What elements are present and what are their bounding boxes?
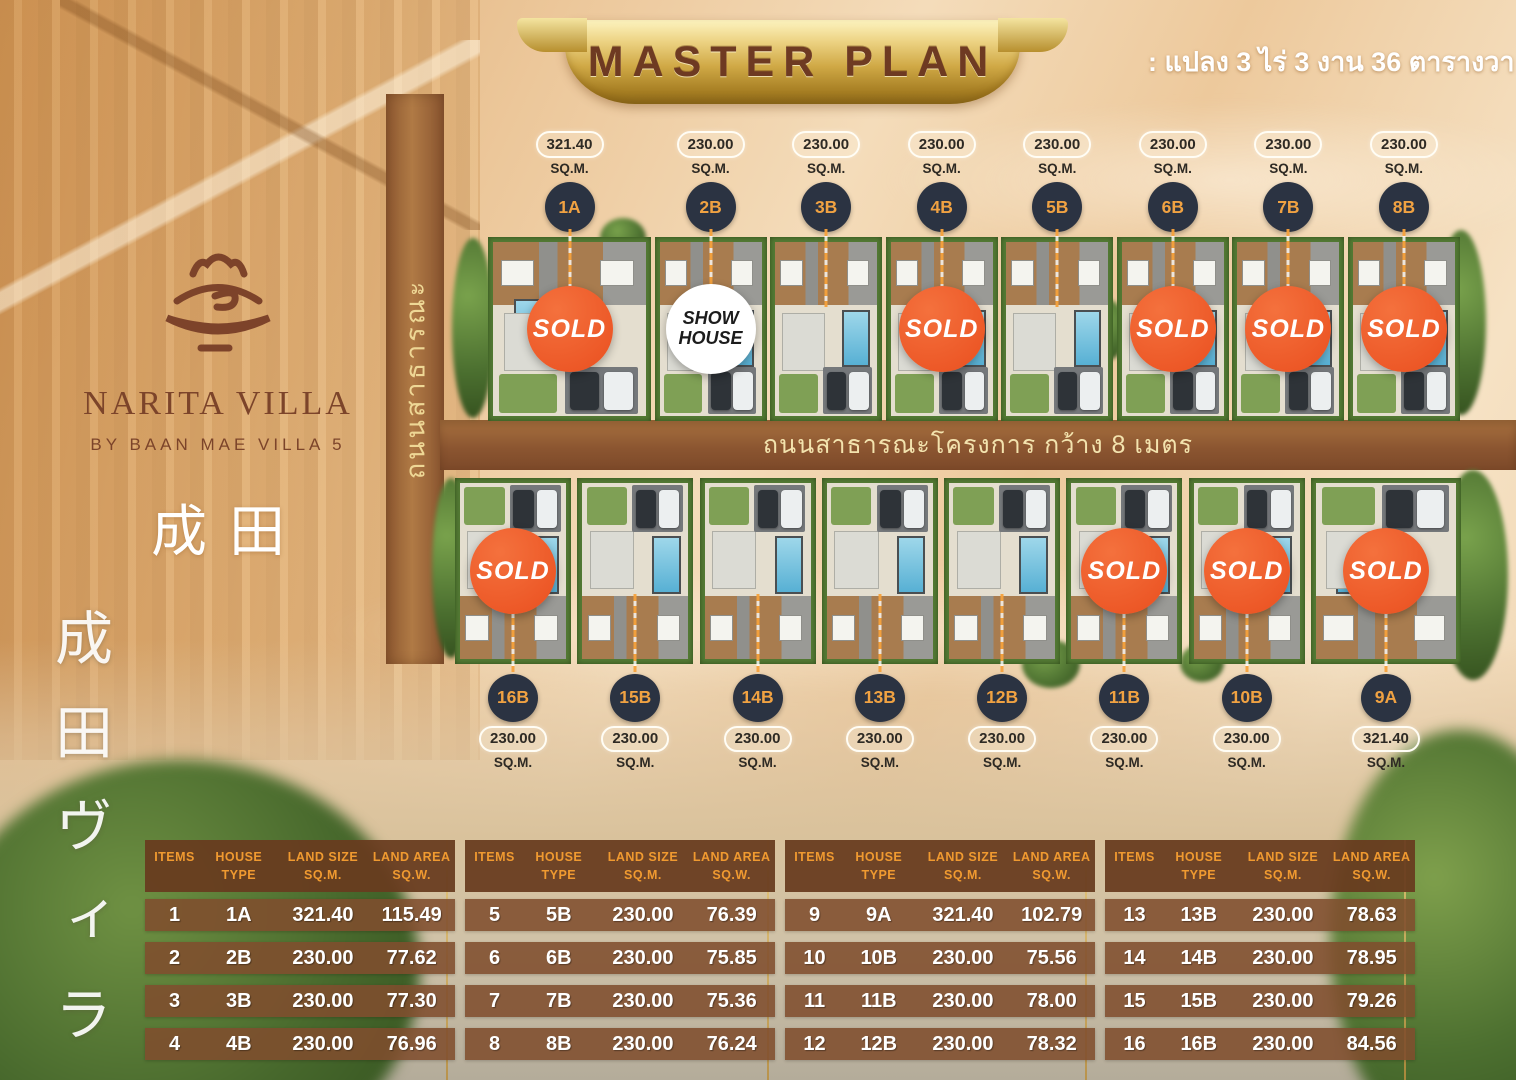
land-area-note: : แปลง 3 ไร่ 3 งาน 36 ตารางวา bbox=[1148, 40, 1515, 83]
plot-size-value: 230.00 bbox=[1101, 730, 1147, 747]
bed bbox=[1077, 615, 1100, 642]
plot-size-units: SQ.M. bbox=[983, 755, 1021, 770]
plot-connector-line bbox=[1056, 229, 1059, 307]
villa-floorplan bbox=[944, 478, 1060, 664]
swimming-pool bbox=[897, 536, 926, 594]
bed bbox=[588, 615, 611, 642]
pagoda-icon bbox=[143, 244, 293, 359]
carport bbox=[1401, 367, 1450, 414]
plot-row-bottom: 16B 230.00 SQ.M. bbox=[455, 468, 1461, 770]
bed bbox=[1309, 260, 1331, 286]
car bbox=[636, 490, 656, 528]
car bbox=[570, 372, 599, 410]
sold-badge: SOLD bbox=[1361, 286, 1447, 372]
plot-label-stack: 12B 230.00 SQ.M. bbox=[944, 666, 1060, 770]
table-cell: 230.00 bbox=[596, 904, 691, 927]
plot: 10B 230.00 SQ.M. bbox=[1189, 468, 1305, 770]
garden-lawn bbox=[1322, 487, 1375, 526]
table-row: 1313B230.0078.63 bbox=[1105, 899, 1415, 931]
table-cell: 12B bbox=[842, 1033, 915, 1056]
villa-floorplan: SOLD bbox=[488, 237, 651, 421]
plot: 230.00 SQ.M. 3B bbox=[770, 131, 882, 423]
table-header-cell: LAND SIZESQ.M. bbox=[276, 848, 371, 884]
plot-id-circle: 1A bbox=[545, 182, 595, 232]
car bbox=[733, 372, 753, 410]
table-row: 1111B230.0078.00 bbox=[785, 985, 1095, 1017]
swimming-pool bbox=[1019, 536, 1048, 594]
garden-lawn bbox=[1010, 374, 1049, 412]
bed bbox=[896, 260, 918, 286]
plot-size-pill: 230.00 bbox=[1090, 726, 1158, 752]
plot-size-units: SQ.M. bbox=[691, 161, 729, 176]
car bbox=[1080, 372, 1100, 410]
plot-size-units: SQ.M. bbox=[1385, 161, 1423, 176]
carport bbox=[1244, 485, 1295, 533]
garden-lawn bbox=[587, 487, 627, 526]
plot: 9A 321.40 SQ.M. bbox=[1311, 468, 1461, 770]
table-header-row: ITEMS HOUSETYPELAND SIZESQ.M.LAND AREASQ… bbox=[1105, 840, 1415, 892]
plot-id-circle: 16B bbox=[488, 674, 538, 722]
plot-label-stack: 15B 230.00 SQ.M. bbox=[577, 666, 693, 770]
table-header-cell: HOUSETYPE bbox=[1162, 848, 1235, 884]
plot-size-units: SQ.M. bbox=[1269, 161, 1307, 176]
plot-id-circle: 12B bbox=[977, 674, 1027, 722]
bed bbox=[1023, 615, 1046, 642]
bed bbox=[1414, 615, 1445, 642]
table-cell: 11 bbox=[787, 990, 842, 1013]
car bbox=[1271, 490, 1291, 528]
brand-subtitle: BY BAAN MAE VILLA 5 bbox=[68, 435, 368, 455]
garden-lawn bbox=[499, 374, 557, 412]
villa-floorplan bbox=[770, 237, 882, 421]
car bbox=[659, 490, 679, 528]
table-header-cell: ITEMS bbox=[787, 848, 842, 884]
sold-badge: SOLD bbox=[1245, 286, 1331, 372]
plot-id-circle: 10B bbox=[1222, 674, 1272, 722]
car bbox=[1058, 372, 1078, 410]
plot-size-units: SQ.M. bbox=[1038, 161, 1076, 176]
table-row: 44B230.0076.96 bbox=[145, 1028, 455, 1060]
garden-lawn bbox=[1357, 374, 1396, 412]
sold-badge: SOLD bbox=[527, 286, 613, 372]
bed bbox=[1193, 260, 1215, 286]
bed bbox=[1268, 615, 1291, 642]
brand-name: NARITA VILLA bbox=[68, 385, 368, 423]
plot-id-circle: 9A bbox=[1361, 674, 1411, 722]
table-cell: 230.00 bbox=[276, 990, 371, 1013]
garden-lawn bbox=[1076, 487, 1116, 526]
plot-id-circle: 15B bbox=[610, 674, 660, 722]
villa-floorplan bbox=[700, 478, 816, 664]
table-row: 1414B230.0078.95 bbox=[1105, 942, 1415, 974]
plot-label-stack: 230.00 SQ.M. 8B bbox=[1348, 131, 1460, 235]
table-cell: 230.00 bbox=[1236, 904, 1331, 927]
plot-connector-line bbox=[825, 229, 828, 307]
plot-size-pill: 230.00 bbox=[1213, 726, 1281, 752]
table-header-cell: LAND AREASQ.W. bbox=[690, 848, 773, 884]
bed bbox=[534, 615, 557, 642]
table-group: ITEMS HOUSETYPELAND SIZESQ.M.LAND AREASQ… bbox=[465, 840, 775, 1060]
car bbox=[1196, 372, 1216, 410]
table-cell: 230.00 bbox=[1236, 990, 1331, 1013]
bed bbox=[657, 615, 680, 642]
table-cell: 14B bbox=[1162, 947, 1235, 970]
bed bbox=[779, 615, 802, 642]
plot-size-units: SQ.M. bbox=[550, 161, 588, 176]
table-cell: 15 bbox=[1107, 990, 1162, 1013]
sold-badge: SOLD bbox=[1081, 528, 1167, 614]
plot: 11B 230.00 SQ.M. bbox=[1066, 468, 1182, 770]
table-cell: 4 bbox=[147, 1033, 202, 1056]
table-header-cell: ITEMS bbox=[467, 848, 522, 884]
plot-size-value: 230.00 bbox=[1265, 136, 1311, 153]
table-body: 55B230.0076.3966B230.0075.8577B230.0075.… bbox=[465, 899, 775, 1060]
plot: 321.40 SQ.M. 1A bbox=[488, 131, 651, 423]
plot-label-stack: 14B 230.00 SQ.M. bbox=[700, 666, 816, 770]
plot-size-units: SQ.M. bbox=[494, 755, 532, 770]
villa-floorplan: SHOWHOUSE bbox=[655, 237, 767, 421]
bed bbox=[1011, 260, 1033, 286]
table-row: 1515B230.0079.26 bbox=[1105, 985, 1415, 1017]
car bbox=[1386, 490, 1413, 528]
swimming-pool bbox=[1074, 310, 1102, 367]
plot-size-value: 321.40 bbox=[547, 136, 593, 153]
table-cell: 78.32 bbox=[1010, 1033, 1093, 1056]
bed bbox=[1358, 260, 1380, 286]
plot-label-stack: 321.40 SQ.M. 1A bbox=[488, 131, 651, 235]
table-cell: 230.00 bbox=[916, 947, 1011, 970]
table-group: ITEMS HOUSETYPELAND SIZESQ.M.LAND AREASQ… bbox=[1105, 840, 1415, 1060]
table-row: 55B230.0076.39 bbox=[465, 899, 775, 931]
table-row: 99A321.40102.79 bbox=[785, 899, 1095, 931]
table-cell: 8 bbox=[467, 1033, 522, 1056]
plot-id-circle: 11B bbox=[1099, 674, 1149, 722]
plot-size-value: 230.00 bbox=[803, 136, 849, 153]
garden-lawn bbox=[1126, 374, 1165, 412]
bed bbox=[847, 260, 869, 286]
car bbox=[711, 372, 731, 410]
car bbox=[1003, 490, 1023, 528]
table-header-cell: ITEMS bbox=[147, 848, 202, 884]
table-row: 66B230.0075.85 bbox=[465, 942, 775, 974]
plot-label-stack: 13B 230.00 SQ.M. bbox=[822, 666, 938, 770]
table-row: 11A321.40115.49 bbox=[145, 899, 455, 931]
car bbox=[965, 372, 985, 410]
bed bbox=[731, 260, 753, 286]
plot-size-units: SQ.M. bbox=[1367, 755, 1405, 770]
car bbox=[781, 490, 801, 528]
bed bbox=[600, 260, 634, 286]
table-cell: 230.00 bbox=[596, 1033, 691, 1056]
bed bbox=[665, 260, 687, 286]
table-header-cell: ITEMS bbox=[1107, 848, 1162, 884]
swimming-pool bbox=[842, 310, 870, 367]
table-cell: 5B bbox=[522, 904, 595, 927]
bed bbox=[1127, 260, 1149, 286]
plot-id-circle: 13B bbox=[855, 674, 905, 722]
table-row: 77B230.0075.36 bbox=[465, 985, 775, 1017]
sold-badge: SOLD bbox=[470, 528, 556, 614]
plot-size-units: SQ.M. bbox=[1228, 755, 1266, 770]
car bbox=[758, 490, 778, 528]
car bbox=[1311, 372, 1331, 410]
carport bbox=[1170, 367, 1219, 414]
bed bbox=[1078, 260, 1100, 286]
garden-lawn bbox=[895, 374, 934, 412]
table-cell: 10 bbox=[787, 947, 842, 970]
garden-lawn bbox=[779, 374, 818, 412]
table-header-cell: LAND AREASQ.W. bbox=[370, 848, 453, 884]
plot-connector-line bbox=[878, 594, 881, 672]
plot: 14B 230.00 SQ.M. bbox=[700, 468, 816, 770]
plot-id-circle: 2B bbox=[686, 182, 736, 232]
table-header-cell: HOUSETYPE bbox=[202, 848, 275, 884]
carport bbox=[1121, 485, 1172, 533]
plot-size-pill: 230.00 bbox=[792, 131, 860, 158]
villa-floorplan: SOLD bbox=[1117, 237, 1229, 421]
plot-id-circle: 14B bbox=[733, 674, 783, 722]
living-area bbox=[782, 313, 825, 370]
table-cell: 2 bbox=[147, 947, 202, 970]
carport bbox=[1382, 485, 1449, 533]
plot-size-value: 230.00 bbox=[735, 730, 781, 747]
garden-lawn bbox=[664, 374, 703, 412]
table-cell: 16B bbox=[1162, 1033, 1235, 1056]
plot: 16B 230.00 SQ.M. bbox=[455, 468, 571, 770]
carport bbox=[823, 367, 872, 414]
plot: 230.00 SQ.M. 7B bbox=[1232, 131, 1344, 423]
table-cell: 79.26 bbox=[1330, 990, 1413, 1013]
table-cell: 102.79 bbox=[1010, 904, 1093, 927]
road-label: ถนนสาธารณะโครงการ กว้าง 8 เมตร bbox=[763, 425, 1193, 465]
brand-name-japanese-vertical: 成田ヴィラ bbox=[36, 608, 120, 1078]
swimming-pool bbox=[775, 536, 804, 594]
plot-label-stack: 230.00 SQ.M. 7B bbox=[1232, 131, 1344, 235]
plot-size-value: 230.00 bbox=[612, 730, 658, 747]
plot-size-pill: 321.40 bbox=[536, 131, 604, 158]
plot-id-circle: 8B bbox=[1379, 182, 1429, 232]
bed bbox=[901, 615, 924, 642]
car bbox=[942, 372, 962, 410]
plot-size-value: 230.00 bbox=[1381, 136, 1427, 153]
plot-id-circle: 5B bbox=[1032, 182, 1082, 232]
car bbox=[1125, 490, 1145, 528]
villa-floorplan bbox=[822, 478, 938, 664]
table-cell: 9 bbox=[787, 904, 842, 927]
table-row: 22B230.0077.62 bbox=[145, 942, 455, 974]
table-cell: 230.00 bbox=[276, 1033, 371, 1056]
plot: 230.00 SQ.M. 5B bbox=[1001, 131, 1113, 423]
table-header-cell: HOUSETYPE bbox=[842, 848, 915, 884]
title-banner: MASTER PLAN bbox=[565, 20, 1020, 104]
bed bbox=[501, 260, 535, 286]
carport bbox=[632, 485, 683, 533]
living-area bbox=[712, 531, 757, 589]
car bbox=[513, 490, 533, 528]
project-road-horizontal: ถนนสาธารณะโครงการ กว้าง 8 เมตร bbox=[440, 420, 1516, 470]
plot-size-value: 230.00 bbox=[919, 136, 965, 153]
table-cell: 8B bbox=[522, 1033, 595, 1056]
plot-size-value: 230.00 bbox=[979, 730, 1025, 747]
plot-id-circle: 6B bbox=[1148, 182, 1198, 232]
table-cell: 115.49 bbox=[370, 904, 453, 927]
plot-size-units: SQ.M. bbox=[616, 755, 654, 770]
brand-name-japanese: 成田 bbox=[68, 487, 368, 568]
plot-connector-line bbox=[634, 594, 637, 672]
table-cell: 13 bbox=[1107, 904, 1162, 927]
bed bbox=[1242, 260, 1264, 286]
table-cell: 77.62 bbox=[370, 947, 453, 970]
plot-size-value: 230.00 bbox=[857, 730, 903, 747]
car bbox=[1427, 372, 1447, 410]
bed bbox=[962, 260, 984, 286]
table-group: ITEMS HOUSETYPELAND SIZESQ.M.LAND AREASQ… bbox=[785, 840, 1095, 1060]
car bbox=[1247, 490, 1267, 528]
plot-size-value: 321.40 bbox=[1363, 730, 1409, 747]
table-body: 1313B230.0078.631414B230.0078.951515B230… bbox=[1105, 899, 1415, 1060]
table-header-cell: LAND SIZESQ.M. bbox=[596, 848, 691, 884]
plot-size-value: 230.00 bbox=[1150, 136, 1196, 153]
garden-lawn bbox=[831, 487, 871, 526]
plot-size-pill: 230.00 bbox=[1370, 131, 1438, 158]
bed bbox=[1146, 615, 1169, 642]
plot-size-units: SQ.M. bbox=[738, 755, 776, 770]
plot: 230.00 SQ.M. 8B bbox=[1348, 131, 1460, 423]
plot-size-units: SQ.M. bbox=[1154, 161, 1192, 176]
table-header-cell: LAND SIZESQ.M. bbox=[916, 848, 1011, 884]
carport bbox=[1285, 367, 1334, 414]
car bbox=[537, 490, 557, 528]
table-cell: 77.30 bbox=[370, 990, 453, 1013]
bed bbox=[780, 260, 802, 286]
garden-lawn bbox=[464, 487, 504, 526]
plot-label-stack: 230.00 SQ.M. 3B bbox=[770, 131, 882, 235]
table-cell: 16 bbox=[1107, 1033, 1162, 1056]
villa-floorplan bbox=[1001, 237, 1113, 421]
car bbox=[1404, 372, 1424, 410]
carport bbox=[877, 485, 928, 533]
table-cell: 230.00 bbox=[1236, 1033, 1331, 1056]
plot-label-stack: 230.00 SQ.M. 5B bbox=[1001, 131, 1113, 235]
plot: 15B 230.00 SQ.M. bbox=[577, 468, 693, 770]
table-cell: 230.00 bbox=[596, 947, 691, 970]
table-header-row: ITEMS HOUSETYPELAND SIZESQ.M.LAND AREASQ… bbox=[145, 840, 455, 892]
table-row: 1212B230.0078.32 bbox=[785, 1028, 1095, 1060]
carport bbox=[754, 485, 805, 533]
brand-block: NARITA VILLA BY BAAN MAE VILLA 5 成田 bbox=[68, 244, 368, 568]
plot-size-pill: 230.00 bbox=[724, 726, 792, 752]
sold-badge: SOLD bbox=[1130, 286, 1216, 372]
carport bbox=[939, 367, 988, 414]
plot-connector-line bbox=[1001, 594, 1004, 672]
table-header-cell: LAND SIZESQ.M. bbox=[1236, 848, 1331, 884]
plot-label-stack: 11B 230.00 SQ.M. bbox=[1066, 666, 1182, 770]
table-header-cell: LAND AREASQ.W. bbox=[1010, 848, 1093, 884]
carport bbox=[708, 367, 757, 414]
car bbox=[880, 490, 900, 528]
living-area bbox=[834, 531, 879, 589]
master-plan-poster: MASTER PLAN : แปลง 3 ไร่ 3 งาน 36 ตารางว… bbox=[0, 0, 1516, 1080]
table-cell: 12 bbox=[787, 1033, 842, 1056]
table-row: 1616B230.0084.56 bbox=[1105, 1028, 1415, 1060]
table-cell: 230.00 bbox=[1236, 947, 1331, 970]
table-cell: 7B bbox=[522, 990, 595, 1013]
living-area bbox=[590, 531, 635, 589]
plot: 12B 230.00 SQ.M. bbox=[944, 468, 1060, 770]
plot-label-stack: 9A 321.40 SQ.M. bbox=[1311, 666, 1461, 770]
plot-size-units: SQ.M. bbox=[861, 755, 899, 770]
plot-size-pill: 230.00 bbox=[479, 726, 547, 752]
plot-size-pill: 321.40 bbox=[1352, 726, 1420, 752]
plot: 13B 230.00 SQ.M. bbox=[822, 468, 938, 770]
vertical-road-label: ถนนสาธารณะ bbox=[394, 279, 437, 480]
carport bbox=[999, 485, 1050, 533]
plot-connector-line bbox=[756, 594, 759, 672]
table-cell: 2B bbox=[202, 947, 275, 970]
carport bbox=[565, 367, 638, 414]
plot-label-stack: 230.00 SQ.M. 4B bbox=[886, 131, 998, 235]
villa-floorplan bbox=[577, 478, 693, 664]
plot-size-pill: 230.00 bbox=[1254, 131, 1322, 158]
table-body: 11A321.40115.4922B230.0077.6233B230.0077… bbox=[145, 899, 455, 1060]
garden-lawn bbox=[1241, 374, 1280, 412]
villa-floorplan: SOLD bbox=[886, 237, 998, 421]
table-cell: 13B bbox=[1162, 904, 1235, 927]
table-cell: 1 bbox=[147, 904, 202, 927]
table-header-row: ITEMS HOUSETYPELAND SIZESQ.M.LAND AREASQ… bbox=[465, 840, 775, 892]
plot-size-pill: 230.00 bbox=[1023, 131, 1091, 158]
table-cell: 5 bbox=[467, 904, 522, 927]
table-row: 1010B230.0075.56 bbox=[785, 942, 1095, 974]
table-cell: 4B bbox=[202, 1033, 275, 1056]
villa-floorplan: SOLD bbox=[1348, 237, 1460, 421]
table-cell: 3 bbox=[147, 990, 202, 1013]
car bbox=[1289, 372, 1309, 410]
villa-floorplan: SOLD bbox=[455, 478, 571, 664]
bed bbox=[954, 615, 977, 642]
car bbox=[604, 372, 633, 410]
table-cell: 230.00 bbox=[596, 990, 691, 1013]
plot-id-circle: 7B bbox=[1263, 182, 1313, 232]
plot-size-value: 230.00 bbox=[1034, 136, 1080, 153]
table-cell: 75.56 bbox=[1010, 947, 1093, 970]
table-cell: 84.56 bbox=[1330, 1033, 1413, 1056]
show-house-badge: SHOWHOUSE bbox=[666, 284, 756, 374]
table-cell: 321.40 bbox=[276, 904, 371, 927]
table-cell: 6 bbox=[467, 947, 522, 970]
table-cell: 10B bbox=[842, 947, 915, 970]
living-area bbox=[957, 531, 1002, 589]
table-cell: 78.63 bbox=[1330, 904, 1413, 927]
villa-floorplan: SOLD bbox=[1066, 478, 1182, 664]
table-cell: 321.40 bbox=[916, 904, 1011, 927]
plot-size-pill: 230.00 bbox=[601, 726, 669, 752]
bed bbox=[1323, 615, 1354, 642]
garden-lawn bbox=[953, 487, 993, 526]
plot-id-circle: 3B bbox=[801, 182, 851, 232]
table-cell: 78.00 bbox=[1010, 990, 1093, 1013]
car bbox=[1026, 490, 1046, 528]
villa-floorplan: SOLD bbox=[1311, 478, 1461, 664]
car bbox=[1148, 490, 1168, 528]
plot-size-pill: 230.00 bbox=[1139, 131, 1207, 158]
plot-size-pill: 230.00 bbox=[677, 131, 745, 158]
table-header-cell: HOUSETYPE bbox=[522, 848, 595, 884]
carport bbox=[1054, 367, 1103, 414]
carport bbox=[510, 485, 561, 533]
table-header-cell: LAND AREASQ.W. bbox=[1330, 848, 1413, 884]
table-cell: 11B bbox=[842, 990, 915, 1013]
